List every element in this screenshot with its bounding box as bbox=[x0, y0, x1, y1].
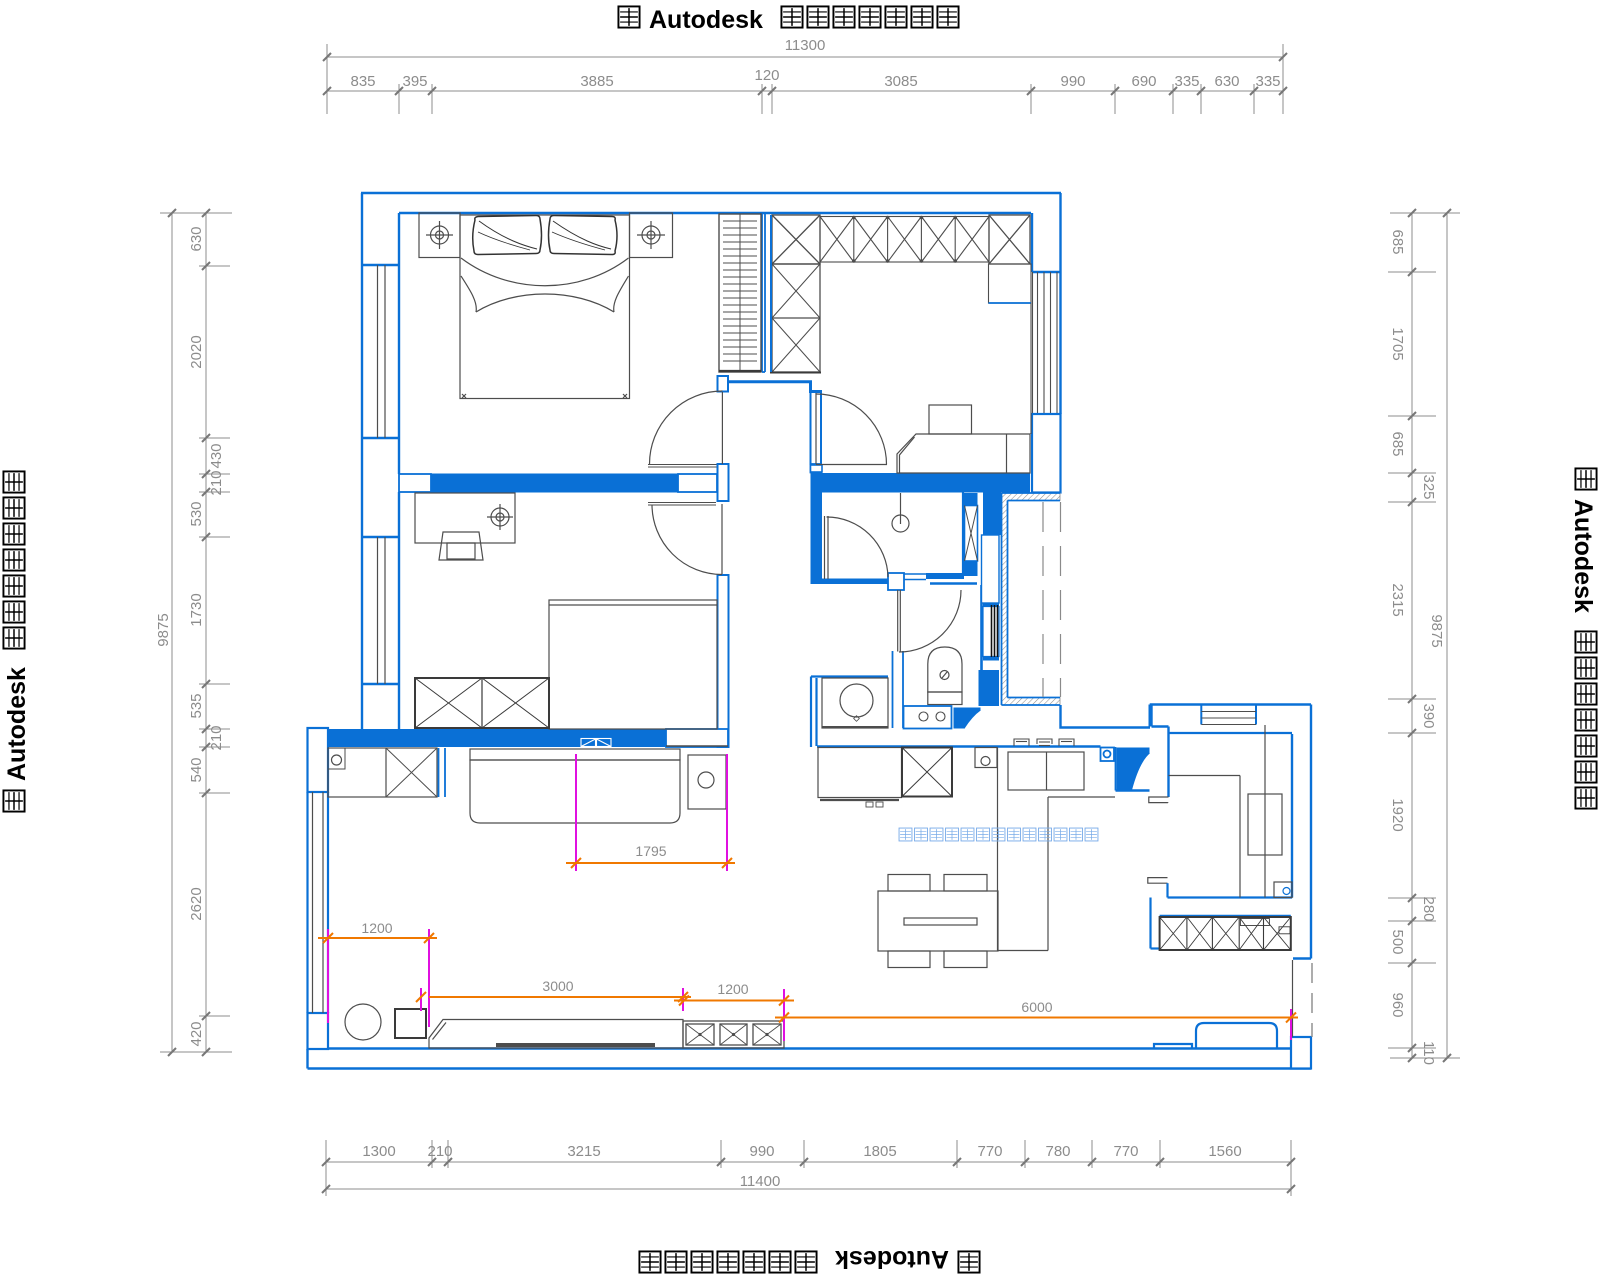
svg-text:1200: 1200 bbox=[361, 920, 392, 936]
svg-text:1730: 1730 bbox=[188, 593, 205, 626]
svg-text:780: 780 bbox=[1045, 1143, 1070, 1160]
svg-text:685: 685 bbox=[1389, 229, 1406, 254]
svg-text:210: 210 bbox=[208, 470, 225, 495]
svg-text:Autodesk: Autodesk bbox=[3, 667, 31, 781]
svg-text:630: 630 bbox=[1214, 73, 1239, 90]
svg-text:11300: 11300 bbox=[785, 37, 826, 54]
svg-text:1795: 1795 bbox=[635, 843, 666, 859]
svg-text:430: 430 bbox=[208, 443, 225, 468]
svg-text:420: 420 bbox=[188, 1021, 205, 1046]
svg-text:690: 690 bbox=[1131, 73, 1156, 90]
svg-text:1200: 1200 bbox=[717, 981, 748, 997]
svg-text:3000: 3000 bbox=[542, 978, 573, 994]
svg-text:2020: 2020 bbox=[188, 335, 205, 368]
svg-text:280: 280 bbox=[1420, 896, 1437, 921]
svg-text:9875: 9875 bbox=[1428, 614, 1445, 647]
svg-text:770: 770 bbox=[977, 1143, 1002, 1160]
svg-text:835: 835 bbox=[350, 73, 375, 90]
svg-text:3215: 3215 bbox=[567, 1143, 600, 1160]
svg-text:11400: 11400 bbox=[740, 1173, 781, 1190]
svg-text:1560: 1560 bbox=[1208, 1143, 1241, 1160]
svg-text:1705: 1705 bbox=[1389, 327, 1406, 360]
svg-text:9875: 9875 bbox=[155, 613, 172, 646]
svg-text:390: 390 bbox=[1420, 703, 1437, 728]
svg-text:335: 335 bbox=[1255, 73, 1280, 90]
svg-text:210: 210 bbox=[427, 1143, 452, 1160]
svg-text:535: 535 bbox=[188, 693, 205, 718]
svg-text:395: 395 bbox=[402, 73, 427, 90]
svg-text:120: 120 bbox=[754, 67, 779, 84]
svg-text:2620: 2620 bbox=[188, 887, 205, 920]
svg-text:990: 990 bbox=[749, 1143, 774, 1160]
svg-text:1805: 1805 bbox=[863, 1143, 896, 1160]
svg-text:335: 335 bbox=[1174, 73, 1199, 90]
svg-text:1920: 1920 bbox=[1389, 798, 1406, 831]
svg-text:3085: 3085 bbox=[884, 73, 917, 90]
svg-text:500: 500 bbox=[1389, 929, 1406, 954]
svg-text:Autodesk: Autodesk bbox=[1569, 499, 1597, 613]
svg-text:Autodesk: Autodesk bbox=[649, 6, 763, 34]
svg-text:685: 685 bbox=[1389, 431, 1406, 456]
svg-text:3885: 3885 bbox=[580, 73, 613, 90]
svg-text:6000: 6000 bbox=[1021, 999, 1052, 1015]
svg-text:110: 110 bbox=[1420, 1041, 1437, 1065]
svg-text:Autodesk: Autodesk bbox=[835, 1245, 949, 1273]
svg-text:325: 325 bbox=[1420, 474, 1437, 499]
svg-text:960: 960 bbox=[1389, 992, 1406, 1017]
svg-text:770: 770 bbox=[1113, 1143, 1138, 1160]
svg-text:1300: 1300 bbox=[362, 1143, 395, 1160]
svg-text:2315: 2315 bbox=[1389, 583, 1406, 616]
svg-text:630: 630 bbox=[188, 226, 205, 251]
svg-text:540: 540 bbox=[188, 757, 205, 782]
svg-text:530: 530 bbox=[188, 501, 205, 526]
svg-text:210: 210 bbox=[208, 725, 225, 750]
svg-text:990: 990 bbox=[1060, 73, 1085, 90]
